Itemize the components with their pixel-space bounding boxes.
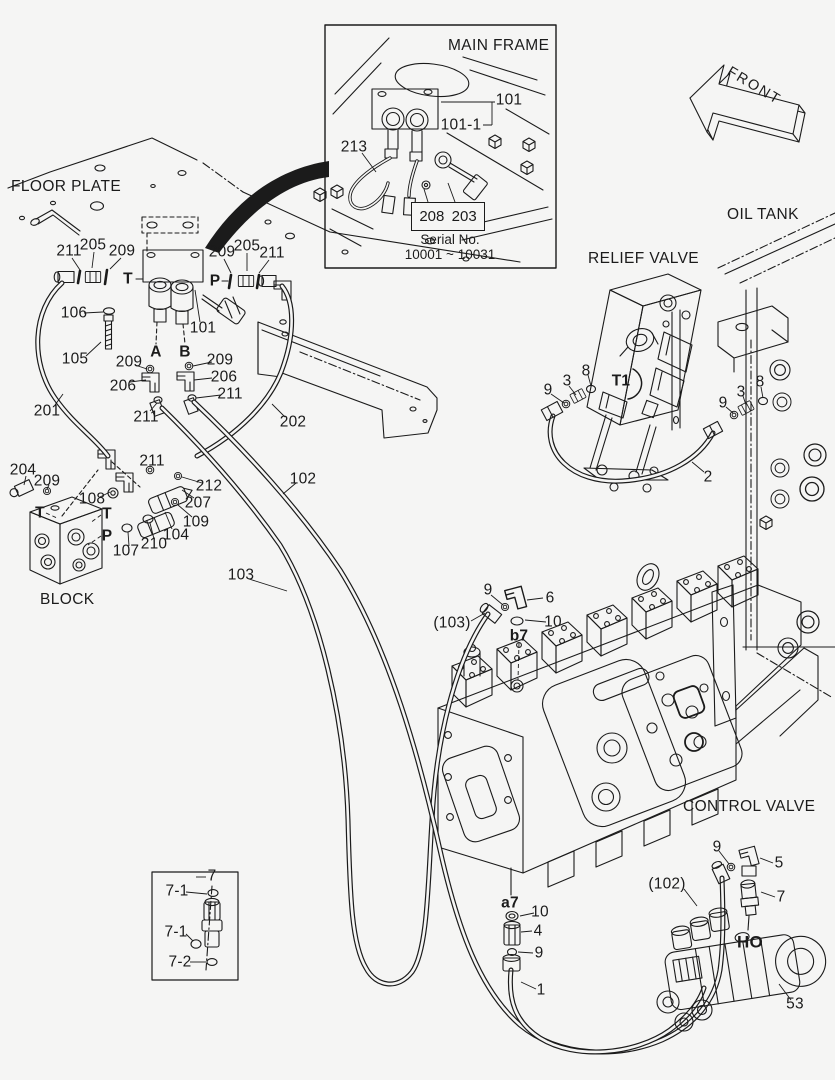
swoosh-arrow (205, 161, 329, 253)
parts-diagram: FLOOR PLATE MAIN FRAME OIL TANK RELIEF V… (0, 0, 835, 1080)
part-callout: 8 (756, 374, 765, 390)
part-callout: 206 (211, 369, 237, 385)
part-callout: 10 (531, 904, 549, 920)
part-callout: 212 (196, 478, 222, 494)
part-callout: 9 (713, 839, 722, 855)
part-callout: 9 (535, 945, 544, 961)
control-valve-label: CONTROL VALVE (683, 798, 815, 816)
serial-range: 10001 ~ 10031 (398, 247, 502, 262)
part-callout: 102 (290, 471, 316, 487)
part-callout: T (35, 505, 45, 521)
part-callout: 211 (56, 243, 81, 259)
part-callout: 10 (544, 614, 562, 630)
ref-number-box: 208 203 (411, 202, 485, 231)
part-callout: 202 (280, 414, 306, 430)
part-callout: A (150, 344, 161, 360)
part-callout: b7 (510, 628, 529, 644)
part-callout: 6 (546, 590, 555, 606)
part-callout: 7 (777, 889, 786, 905)
part-callout: 2 (704, 469, 713, 485)
part-callout: 209 (116, 354, 142, 370)
relief-valve-art (584, 274, 701, 492)
part-callout: 209 (109, 243, 135, 259)
part-callout: T1 (612, 373, 631, 389)
part-callout: 109 (183, 514, 209, 530)
part-callout: 205 (234, 238, 260, 254)
part-callout: 103 (228, 567, 254, 583)
part-callout: 1 (537, 982, 546, 998)
part-callout: 8 (582, 363, 591, 379)
part-callout: 105 (62, 351, 88, 367)
part-callout: 213 (341, 139, 367, 155)
part-callout: 211 (133, 409, 158, 425)
part-callout: 211 (259, 245, 284, 261)
part-callout: 9 (544, 382, 553, 398)
part-callout: 211 (217, 386, 242, 402)
part-callout: 7-2 (168, 954, 191, 970)
part-callout: 4 (534, 923, 543, 939)
diagram-art (0, 0, 835, 1080)
part-callout: (102) (648, 876, 685, 892)
part-callout: 201 (34, 403, 60, 419)
part-callout: 3 (737, 384, 746, 400)
ref-208: 208 (419, 208, 444, 225)
relief-valve-label: RELIEF VALVE (588, 250, 699, 268)
part-callout: 211 (139, 453, 164, 469)
part-callout: P (102, 528, 113, 544)
part-callout: 9 (484, 582, 493, 598)
part-callout: a7 (501, 895, 519, 911)
floor-plate-label: FLOOR PLATE (11, 178, 121, 196)
part-callout: 101 (190, 320, 216, 336)
ref-203: 203 (452, 208, 477, 225)
part-callout: HO (737, 934, 763, 951)
part-callout: 5 (775, 855, 784, 871)
part-callout: 206 (110, 378, 136, 394)
part-callout: 7 (208, 868, 217, 884)
part-callout: 53 (786, 996, 804, 1012)
a7-fitting-column (503, 868, 520, 971)
part-callout: 101 (496, 92, 522, 108)
part-callout: 7-1 (165, 883, 188, 899)
main-frame-label: MAIN FRAME (448, 37, 549, 55)
part-callout: T (123, 271, 133, 287)
part-callout: T (102, 506, 112, 522)
hoses (38, 283, 723, 1052)
part-callout: 209 (209, 244, 235, 260)
part-callout: 107 (113, 543, 139, 559)
part-callout: 209 (34, 473, 60, 489)
part-callout: 3 (563, 373, 572, 389)
part-callout: B (179, 344, 190, 360)
control-valve-art (438, 556, 818, 887)
serial-caption: Serial No. (405, 232, 495, 247)
part-callout: 209 (207, 352, 233, 368)
part-callout: 207 (185, 495, 211, 511)
oil-tank-art (718, 213, 835, 698)
oil-tank-label: OIL TANK (727, 206, 799, 224)
part-callout: 205 (80, 237, 106, 253)
part-callout: 7-1 (164, 924, 187, 940)
block-label: BLOCK (40, 591, 95, 609)
part-callout: 9 (719, 395, 728, 411)
part-callout: (103) (433, 615, 470, 631)
part-callout: 106 (61, 305, 87, 321)
part-callout: 101-1 (441, 117, 482, 133)
part-callout: 204 (10, 462, 36, 478)
part-callout: P (210, 273, 221, 289)
